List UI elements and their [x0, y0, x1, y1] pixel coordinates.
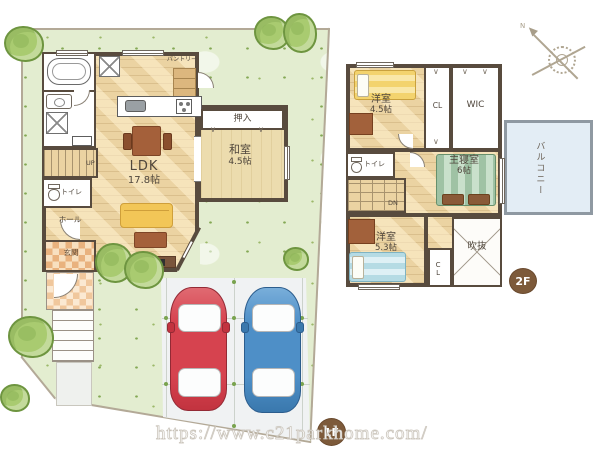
parking-line: [302, 278, 303, 438]
room-opening: [194, 136, 201, 182]
room-label-genkan: 玄関: [54, 249, 88, 258]
compass-north-label: N: [520, 22, 525, 30]
room-label-toilet-1f: トイレ: [61, 188, 82, 196]
window: [122, 50, 164, 56]
yoshitsu1-name: 洋室: [350, 94, 412, 106]
yoshitsu2-size: 5.3帖: [352, 244, 420, 254]
ldk-name: LDK: [116, 160, 172, 175]
washbasin: [46, 94, 72, 109]
vanity-cabinet: [72, 136, 92, 146]
room-label-oshiire: 押入: [201, 114, 284, 124]
master-size: 6帖: [428, 167, 500, 177]
kitchen-sink: [125, 100, 146, 112]
blue-car: [244, 287, 301, 413]
refrigerator-space: [99, 56, 120, 77]
tree-foliage: [13, 34, 29, 48]
bush: [124, 251, 164, 289]
approach-steps: [52, 310, 94, 362]
desk: [349, 113, 373, 135]
stove: [176, 99, 192, 114]
stairs-dn-label: DN: [388, 200, 398, 207]
pillow: [468, 194, 490, 205]
parking-grass-dot: [164, 382, 168, 386]
room-label-wic: WIC: [451, 100, 500, 110]
pillow: [442, 194, 464, 205]
room-label-washitsu: 和室 4.5帖: [208, 144, 272, 167]
room-label-balcony: バルコニー: [534, 132, 544, 204]
stove-burners-icon: [179, 102, 183, 106]
tree-foliage: [290, 253, 300, 262]
master-name: 主寝室: [428, 155, 500, 167]
yoshitsu1-size: 4.5帖: [350, 106, 412, 116]
parking-grass-dot: [164, 316, 168, 320]
washitsu-size: 4.5帖: [208, 157, 272, 167]
room-label-yoshitsu2: 洋室 5.3帖: [352, 232, 420, 253]
staircase-2f: [346, 178, 406, 213]
tree-foliage: [134, 260, 149, 273]
room-label-void: 吹抜: [452, 242, 502, 253]
toilet-icon: [48, 189, 60, 201]
folding-door-mark: ∨: [482, 68, 488, 76]
tree: [4, 26, 44, 62]
dining-chair: [163, 133, 172, 150]
folding-door-mark: ∨: [258, 126, 264, 134]
ldk-size: 17.8帖: [116, 175, 172, 187]
car-mirror: [241, 322, 249, 333]
compass-inner-circle: [556, 54, 568, 66]
parking-line: [166, 278, 167, 418]
window: [356, 62, 394, 68]
tree-foliage: [262, 24, 276, 36]
car-mirror: [222, 322, 230, 333]
window: [56, 50, 88, 56]
folding-door-mark: ∨: [433, 68, 439, 76]
parking-grass-dot: [232, 280, 236, 284]
red-car: [170, 287, 227, 411]
site-boundary-left: [21, 28, 23, 358]
car-mirror: [167, 322, 175, 333]
balcony: [504, 120, 593, 215]
living-table: [134, 232, 167, 248]
room-label-cl1: CL: [424, 102, 451, 111]
room-label-pantry: パントリー: [164, 57, 200, 64]
approach-path: [56, 362, 92, 406]
folding-door-mark: ∨: [210, 126, 216, 134]
room-label-ldk: LDK 17.8帖: [116, 160, 172, 186]
compass-north-icon: N: [520, 22, 596, 92]
car-rear-window: [252, 368, 295, 397]
room-label-cl2: CL: [434, 255, 442, 283]
room-label-hall: ホール: [52, 216, 88, 225]
washing-machine-space: [46, 112, 68, 134]
dining-chair: [123, 133, 132, 150]
compass-arrowhead: [526, 24, 538, 36]
dining-table: [132, 126, 161, 156]
washitsu-name: 和室: [208, 144, 272, 157]
pillow: [352, 256, 364, 279]
tree: [0, 384, 30, 412]
folding-door-mark: ∨: [462, 68, 468, 76]
room-label-yoshitsu1: 洋室 4.5帖: [350, 94, 412, 115]
car-mirror: [296, 322, 304, 333]
tree: [283, 13, 317, 53]
tree-foliage: [18, 326, 36, 341]
room-label-master: 主寝室 6帖: [428, 155, 500, 176]
yoshitsu2-name: 洋室: [352, 232, 420, 244]
bathtub: [47, 58, 91, 85]
window: [284, 146, 290, 180]
tree-foliage: [291, 22, 304, 35]
parking-grass-dot: [232, 382, 236, 386]
watermark-url: https://www.c21parkhome.com/: [156, 423, 428, 445]
folding-door-mark: ∨: [433, 138, 439, 146]
car-rear-window: [178, 368, 221, 397]
tree: [8, 316, 54, 358]
floor-badge-2f: 2F: [509, 268, 537, 294]
bush: [283, 247, 309, 271]
car-windshield: [252, 304, 295, 332]
car-windshield: [178, 304, 221, 332]
stairs-up-label: UP: [86, 160, 95, 167]
sofa: [120, 203, 173, 228]
floor-plan-canvas: ∨ ∨ LDK 17.8帖 和室 4.5帖 押入 パントリー トイレ ホール 玄…: [0, 0, 600, 464]
bathtub-inner: [52, 63, 86, 80]
parking-grass-dot: [232, 316, 236, 320]
toilet-icon: [351, 162, 362, 173]
tree-foliage: [104, 252, 119, 266]
room-label-toilet-2f: トイレ: [364, 160, 385, 168]
tree-foliage: [7, 391, 19, 401]
parking-line: [234, 278, 235, 426]
window: [358, 284, 400, 290]
